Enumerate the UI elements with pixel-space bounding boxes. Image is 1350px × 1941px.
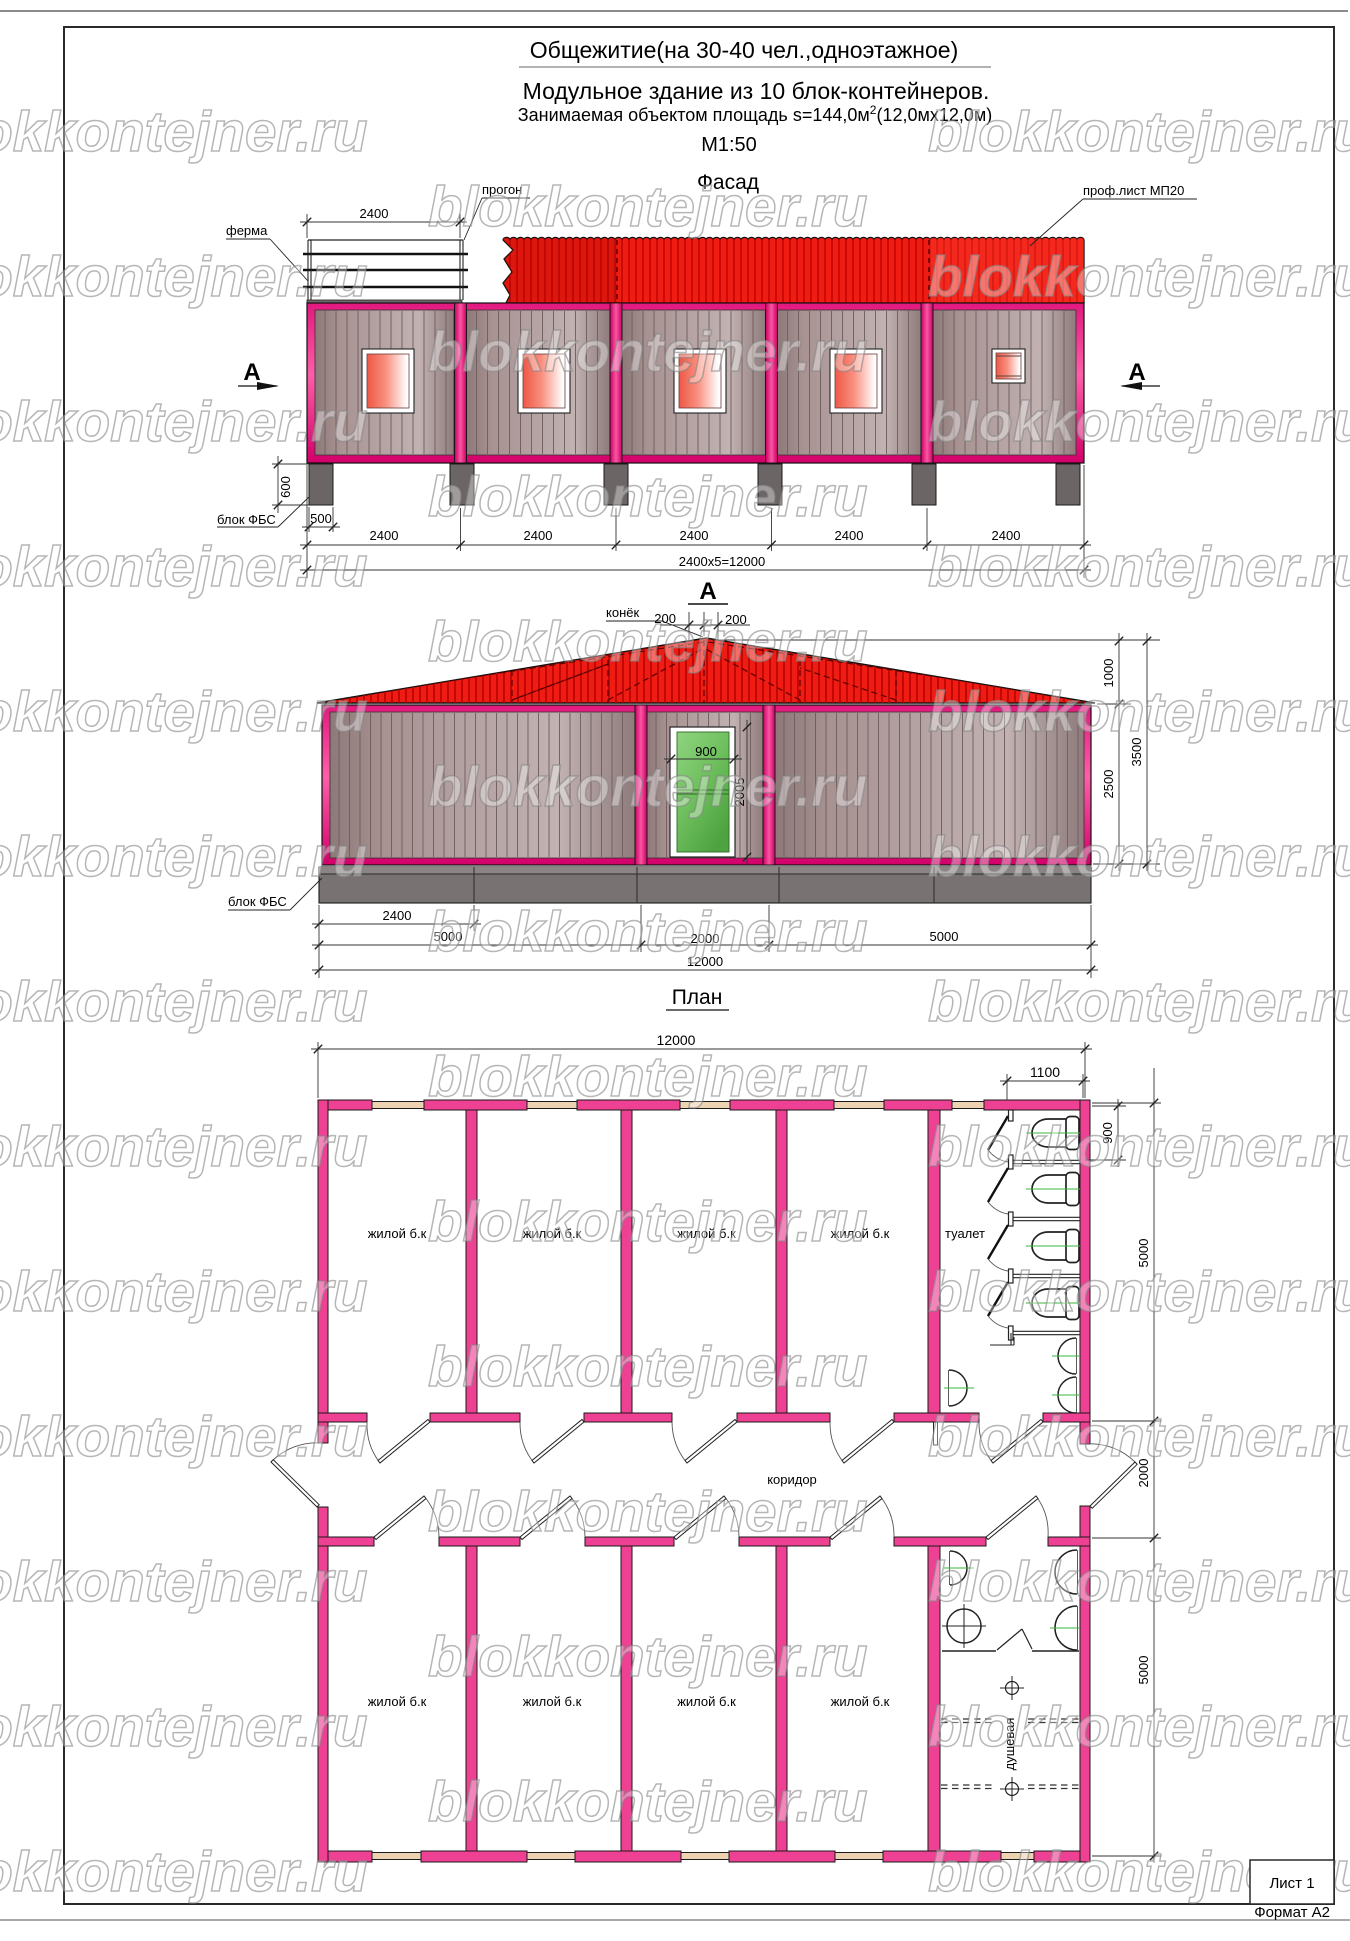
svg-text:Лист 1: Лист 1: [1269, 1875, 1314, 1892]
svg-text:blokkontejner.ru: blokkontejner.ru: [0, 680, 368, 743]
svg-text:2400: 2400: [370, 528, 399, 543]
svg-text:blokkontejner.ru: blokkontejner.ru: [0, 1115, 368, 1178]
svg-text:жилой б.к: жилой б.к: [677, 1694, 736, 1709]
svg-text:М1:50: М1:50: [701, 134, 757, 156]
svg-text:blokkontejner.ru: blokkontejner.ru: [0, 970, 368, 1033]
svg-text:blokkontejner.ru: blokkontejner.ru: [928, 1695, 1350, 1758]
svg-text:Формат А2: Формат А2: [1254, 1904, 1330, 1921]
svg-text:blokkontejner.ru: blokkontejner.ru: [928, 970, 1350, 1033]
svg-text:blokkontejner.ru: blokkontejner.ru: [0, 825, 368, 888]
svg-text:2400: 2400: [680, 528, 709, 543]
svg-text:blokkontejner.ru: blokkontejner.ru: [0, 1840, 368, 1903]
svg-text:blokkontejner.ru: blokkontejner.ru: [928, 1115, 1350, 1178]
svg-text:2400: 2400: [524, 528, 553, 543]
svg-text:blokkontejner.ru: blokkontejner.ru: [428, 900, 868, 963]
svg-text:ферма: ферма: [226, 223, 268, 238]
svg-text:blokkontejner.ru: blokkontejner.ru: [928, 1550, 1350, 1613]
svg-text:500: 500: [310, 511, 332, 526]
svg-text:blokkontejner.ru: blokkontejner.ru: [0, 100, 368, 163]
svg-text:жилой б.к: жилой б.к: [368, 1694, 427, 1709]
svg-text:blokkontejner.ru: blokkontejner.ru: [428, 1770, 868, 1833]
svg-text:blokkontejner.ru: blokkontejner.ru: [428, 1335, 868, 1398]
svg-text:2400: 2400: [383, 908, 412, 923]
svg-text:blokkontejner.ru: blokkontejner.ru: [428, 1625, 868, 1688]
svg-text:blokkontejner.ru: blokkontejner.ru: [0, 1405, 368, 1468]
svg-text:blokkontejner.ru: blokkontejner.ru: [428, 755, 868, 818]
svg-text:блок ФБС: блок ФБС: [217, 512, 276, 527]
svg-text:blokkontejner.ru: blokkontejner.ru: [928, 245, 1350, 308]
svg-text:жилой б.к: жилой б.к: [831, 1694, 890, 1709]
svg-text:жилой б.к: жилой б.к: [368, 1226, 427, 1241]
svg-text:2500: 2500: [1101, 770, 1116, 799]
svg-text:blokkontejner.ru: blokkontejner.ru: [428, 1190, 868, 1253]
svg-text:blokkontejner.ru: blokkontejner.ru: [0, 390, 368, 453]
svg-text:жилой б.к: жилой б.к: [523, 1694, 582, 1709]
svg-text:blokkontejner.ru: blokkontejner.ru: [0, 1260, 368, 1323]
svg-text:2400: 2400: [835, 528, 864, 543]
svg-text:blokkontejner.ru: blokkontejner.ru: [928, 825, 1350, 888]
svg-text:проф.лист МП20: проф.лист МП20: [1083, 183, 1184, 198]
svg-text:А: А: [243, 359, 260, 386]
svg-text:туалет: туалет: [945, 1226, 985, 1241]
svg-text:А: А: [1128, 359, 1145, 386]
svg-text:1100: 1100: [1030, 1064, 1060, 1080]
svg-text:5000: 5000: [930, 929, 959, 944]
svg-text:blokkontejner.ru: blokkontejner.ru: [928, 100, 1350, 163]
svg-text:Общежитие(на 30-40 чел.,одноэт: Общежитие(на 30-40 чел.,одноэтажное): [530, 37, 958, 63]
svg-text:blokkontejner.ru: blokkontejner.ru: [428, 610, 868, 673]
svg-text:blokkontejner.ru: blokkontejner.ru: [928, 535, 1350, 598]
svg-text:blokkontejner.ru: blokkontejner.ru: [928, 680, 1350, 743]
svg-text:блок ФБС: блок ФБС: [228, 894, 287, 909]
svg-text:blokkontejner.ru: blokkontejner.ru: [428, 465, 868, 528]
svg-text:600: 600: [278, 476, 293, 498]
svg-text:blokkontejner.ru: blokkontejner.ru: [428, 1480, 868, 1543]
svg-text:blokkontejner.ru: blokkontejner.ru: [428, 175, 868, 238]
svg-text:2400: 2400: [360, 206, 389, 221]
svg-text:blokkontejner.ru: blokkontejner.ru: [928, 1260, 1350, 1323]
svg-text:blokkontejner.ru: blokkontejner.ru: [0, 245, 368, 308]
svg-text:2400х5=12000: 2400х5=12000: [679, 554, 765, 569]
svg-text:blokkontejner.ru: blokkontejner.ru: [0, 535, 368, 598]
svg-text:План: План: [672, 986, 723, 1009]
svg-text:Модульное здание из 10 блок-к: Модульное здание из 10 блок-контейнеров.: [523, 78, 990, 104]
svg-text:blokkontejner.ru: blokkontejner.ru: [428, 320, 868, 383]
svg-text:Занимаемая объектом площадь: Занимаемая объектом площадь s=144,0м2(12…: [518, 103, 993, 125]
svg-text:blokkontejner.ru: blokkontejner.ru: [928, 390, 1350, 453]
svg-text:5000: 5000: [1136, 1656, 1151, 1685]
svg-text:blokkontejner.ru: blokkontejner.ru: [0, 1695, 368, 1758]
svg-text:А: А: [699, 578, 716, 605]
svg-text:blokkontejner.ru: blokkontejner.ru: [0, 1550, 368, 1613]
svg-text:blokkontejner.ru: blokkontejner.ru: [928, 1405, 1350, 1468]
svg-text:blokkontejner.ru: blokkontejner.ru: [428, 1045, 868, 1108]
